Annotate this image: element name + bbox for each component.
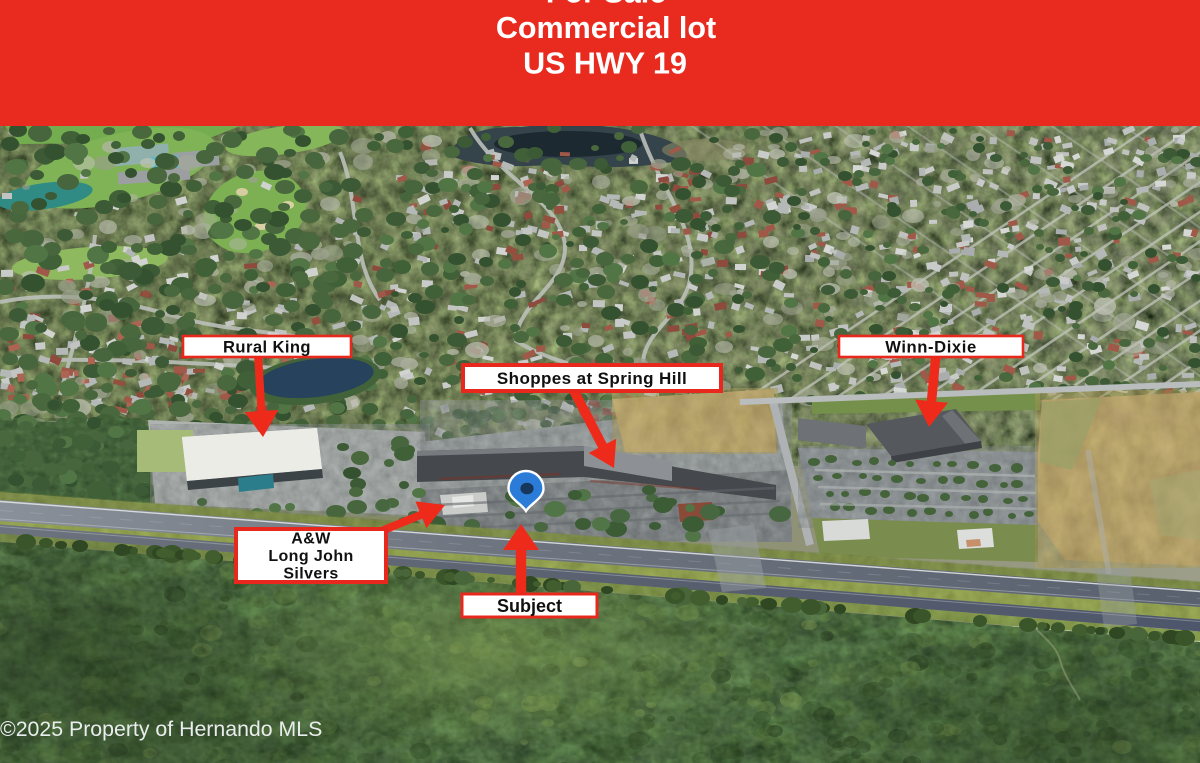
svg-text:A&W: A&W bbox=[291, 531, 331, 548]
svg-text:Silvers: Silvers bbox=[283, 566, 338, 583]
svg-text:For Sale: For Sale bbox=[546, 0, 666, 10]
svg-text:Winn-Dixie: Winn-Dixie bbox=[885, 338, 977, 357]
svg-text:Commercial lot: Commercial lot bbox=[496, 11, 716, 45]
svg-text:Shoppes at Spring Hill: Shoppes at Spring Hill bbox=[497, 369, 687, 388]
svg-text:©2025 Property of Hernando MLS: ©2025 Property of Hernando MLS bbox=[0, 717, 322, 741]
svg-text:Rural King: Rural King bbox=[223, 338, 311, 357]
svg-text:US HWY 19: US HWY 19 bbox=[523, 47, 687, 81]
svg-text:Long John: Long John bbox=[268, 548, 353, 565]
svg-text:Subject: Subject bbox=[497, 596, 562, 616]
